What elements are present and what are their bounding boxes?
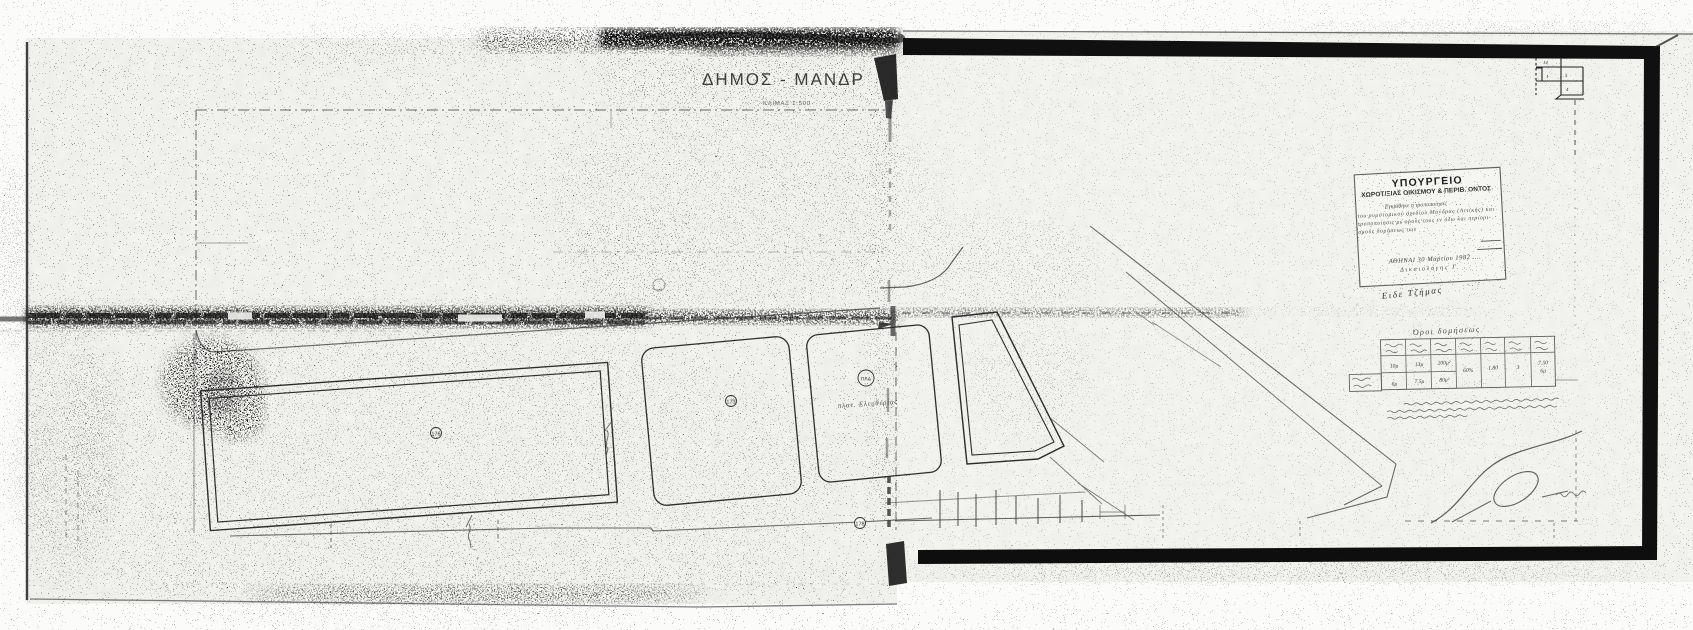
- svg-text:176: 176: [431, 432, 440, 438]
- svg-text:6μ: 6μ: [1540, 368, 1546, 374]
- svg-text:173: 173: [726, 400, 735, 406]
- svg-text:13μ: 13μ: [1415, 362, 1424, 368]
- svg-text:80μ²: 80μ²: [1439, 377, 1450, 383]
- svg-text:1.80: 1.80: [1488, 365, 1498, 371]
- svg-text:7.5μ: 7.5μ: [1414, 379, 1424, 385]
- svg-text:60%: 60%: [1463, 368, 1474, 374]
- svg-text:ΠΛΑ: ΠΛΑ: [861, 377, 872, 383]
- svg-text:3: 3: [1516, 365, 1520, 371]
- svg-text:1: 1: [1546, 74, 1548, 80]
- svg-text:7.50: 7.50: [1538, 360, 1548, 366]
- svg-text:ΔΗΜΟΣ - ΜΑΝΔΡ: ΔΗΜΟΣ - ΜΑΝΔΡ: [702, 70, 867, 89]
- svg-text:178: 178: [855, 522, 864, 528]
- svg-text:200μ²: 200μ²: [1437, 360, 1450, 366]
- svg-text:6μ: 6μ: [1392, 381, 1398, 387]
- svg-text:ΚΛΙΜΑΞ 1:500: ΚΛΙΜΑΞ 1:500: [763, 100, 811, 107]
- svg-text:10μ: 10μ: [1390, 363, 1399, 369]
- svg-text:14: 14: [1543, 60, 1548, 66]
